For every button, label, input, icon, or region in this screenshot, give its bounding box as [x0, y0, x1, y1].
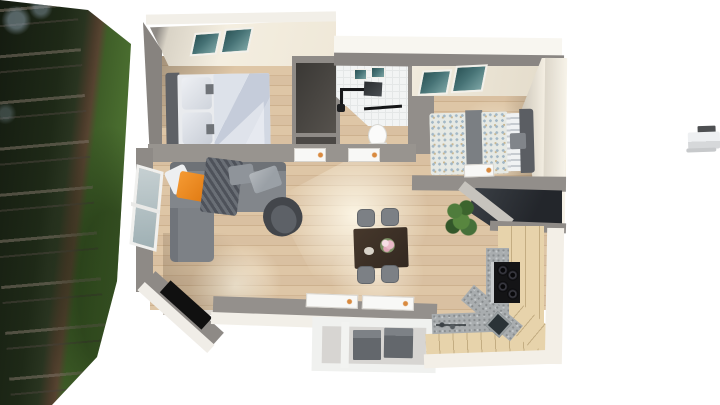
table-plate [364, 247, 374, 255]
kitchen-east-fascia [545, 228, 564, 364]
closet-niche [296, 63, 336, 133]
open-door [464, 163, 494, 177]
distant-structure-shadow [686, 148, 716, 153]
flower-vase [380, 238, 395, 253]
dining-chair [357, 209, 375, 227]
counter-items [436, 319, 466, 332]
double-bed [165, 71, 272, 151]
skylight-pane [220, 27, 254, 54]
floorplan-render-scene [0, 0, 720, 405]
dining-chair [357, 266, 375, 284]
porch-door [306, 293, 358, 309]
pillow-button [206, 124, 214, 134]
sky-glints [0, 0, 136, 405]
shower-head-icon [337, 104, 345, 112]
bedroom2-skylight [417, 64, 491, 98]
skylight-pane [417, 69, 452, 96]
potted-plant [444, 199, 480, 239]
pillow-button [206, 84, 214, 94]
bathroom-mirror [364, 82, 383, 97]
bathroom-skylight [354, 69, 367, 80]
shower-arm [340, 88, 364, 91]
porch-door [362, 295, 414, 311]
forest-photo-strip [0, 0, 136, 405]
dining-chair [381, 208, 399, 226]
sofa-chaise [170, 208, 214, 262]
storage-bin [353, 330, 381, 360]
distant-structure [685, 123, 720, 158]
cooktop [491, 262, 520, 303]
storage-bin [384, 328, 414, 359]
bed-cushion [510, 133, 526, 149]
skylight-pane [190, 31, 222, 56]
skylight-pane [451, 64, 488, 93]
bathroom-skylight [371, 67, 385, 78]
bedroom1-skylight [189, 27, 257, 59]
dining-chair [381, 265, 399, 283]
open-door [348, 148, 380, 162]
porch-divider-wall [341, 322, 350, 368]
open-door [294, 148, 326, 162]
